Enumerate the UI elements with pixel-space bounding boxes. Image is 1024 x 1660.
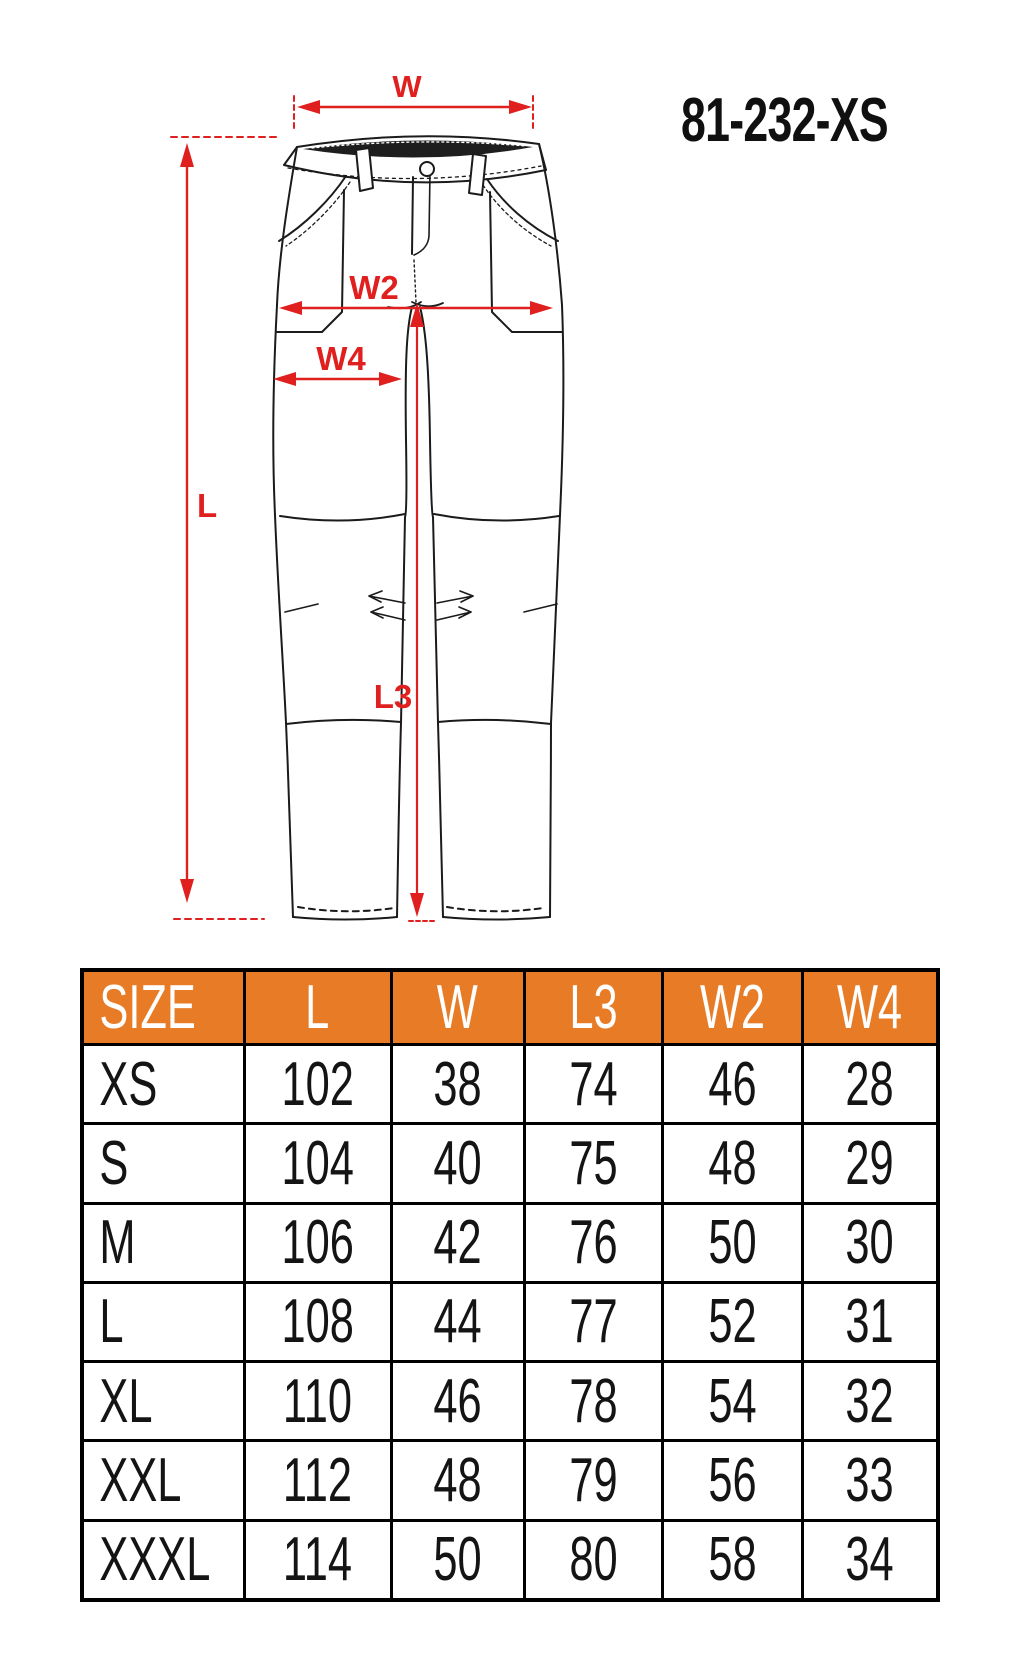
table-row-XXL: XXL11248795633 <box>82 1441 938 1520</box>
left-inseam <box>397 307 412 917</box>
size-cell: XS <box>82 1045 244 1124</box>
value-cell: 80 <box>524 1520 662 1600</box>
right-hem-stitch <box>447 907 543 911</box>
l-arrowhead-top <box>180 143 194 167</box>
dimension-w: W <box>294 69 533 129</box>
right-pocket-stitch <box>483 185 551 246</box>
header-cell-size: SIZE <box>82 970 244 1045</box>
table-row-XXXL: XXXL11450805834 <box>82 1520 938 1600</box>
right-lower-seam <box>438 720 551 724</box>
fly-left-edge <box>412 177 413 254</box>
value-cell: 112 <box>244 1441 391 1520</box>
size-cell: XXL <box>82 1441 244 1520</box>
value-cell: 46 <box>662 1045 802 1124</box>
w-arrowhead-left <box>297 100 320 114</box>
right-knee-seam <box>434 514 559 521</box>
table-header-row: SIZE L W L3 W2 W4 <box>82 970 938 1045</box>
fly-j-stitch <box>414 172 430 255</box>
w2-arrowhead-right <box>530 301 553 315</box>
size-cell: XXXL <box>82 1520 244 1600</box>
header-cell-w4: W4 <box>802 970 938 1045</box>
value-cell: 52 <box>662 1282 802 1361</box>
value-cell: 48 <box>662 1124 802 1203</box>
value-cell: 44 <box>391 1282 524 1361</box>
table-row-XL: XL11046785432 <box>82 1362 938 1441</box>
value-cell: 40 <box>391 1124 524 1203</box>
dimension-annotations: W L W2 W4 <box>171 69 553 921</box>
value-cell: 34 <box>802 1520 938 1600</box>
w-arrowhead-right <box>509 100 532 114</box>
left-knee-seam <box>280 514 405 521</box>
value-cell: 104 <box>244 1124 391 1203</box>
value-cell: 38 <box>391 1045 524 1124</box>
value-cell: 50 <box>662 1203 802 1282</box>
left-pocket-opening <box>279 176 346 241</box>
trousers-sketch <box>273 136 563 919</box>
waist-button <box>420 162 434 176</box>
value-cell: 114 <box>244 1520 391 1600</box>
right-hem-edge <box>443 917 550 920</box>
left-pocket-stitch <box>286 182 350 246</box>
header-cell-l: L <box>244 970 391 1045</box>
value-cell: 78 <box>524 1362 662 1441</box>
l3-label: L3 <box>374 678 413 715</box>
l3-arrowhead-bottom <box>410 893 424 917</box>
value-cell: 106 <box>244 1203 391 1282</box>
value-cell: 56 <box>662 1441 802 1520</box>
value-cell: 102 <box>244 1045 391 1124</box>
value-cell: 79 <box>524 1441 662 1520</box>
value-cell: 77 <box>524 1282 662 1361</box>
left-hem-stitch <box>298 907 394 911</box>
table-row-M: M10642765030 <box>82 1203 938 1282</box>
fly-center-stitch <box>414 260 416 302</box>
header-cell-l3: L3 <box>524 970 662 1045</box>
value-cell: 30 <box>802 1203 938 1282</box>
left-hem-edge <box>293 917 397 920</box>
value-cell: 58 <box>662 1520 802 1600</box>
w2-label: W2 <box>349 269 399 306</box>
size-cell: M <box>82 1203 244 1282</box>
w-label: W <box>392 69 422 104</box>
value-cell: 74 <box>524 1045 662 1124</box>
size-cell: S <box>82 1124 244 1203</box>
right-outseam <box>539 144 563 917</box>
size-chart-page: 81-232-XS <box>0 0 1024 1660</box>
value-cell: 33 <box>802 1441 938 1520</box>
value-cell: 29 <box>802 1124 938 1203</box>
table-row-XS: XS10238744628 <box>82 1045 938 1124</box>
dimension-w4: W4 <box>273 340 402 386</box>
table-body: XS10238744628S10440754829M10642765030L10… <box>82 1045 938 1601</box>
value-cell: 32 <box>802 1362 938 1441</box>
value-cell: 76 <box>524 1203 662 1282</box>
value-cell: 50 <box>391 1520 524 1600</box>
table-row-L: L10844775231 <box>82 1282 938 1361</box>
waist-opening-dark <box>303 140 533 157</box>
size-cell: L <box>82 1282 244 1361</box>
w2-arrowhead-left <box>279 301 302 315</box>
value-cell: 54 <box>662 1362 802 1441</box>
value-cell: 46 <box>391 1362 524 1441</box>
left-knee-darts <box>285 591 405 620</box>
size-chart-table: SIZE L W L3 W2 W4 XS10238744628S10440754… <box>80 968 940 1602</box>
size-cell: XL <box>82 1362 244 1441</box>
table-row-S: S10440754829 <box>82 1124 938 1203</box>
trousers-measurement-diagram: W L W2 W4 <box>0 0 1024 950</box>
belt-loop-right <box>469 154 486 195</box>
w4-arrowhead-left <box>273 372 296 386</box>
l-label: L <box>197 487 217 524</box>
value-cell: 75 <box>524 1124 662 1203</box>
right-inseam <box>420 307 443 917</box>
value-cell: 48 <box>391 1441 524 1520</box>
value-cell: 42 <box>391 1203 524 1282</box>
belt-loop-left <box>356 148 373 191</box>
l-arrowhead-bottom <box>180 879 194 903</box>
dimension-l: L <box>171 137 276 919</box>
right-knee-darts <box>437 591 557 620</box>
value-cell: 31 <box>802 1282 938 1361</box>
w4-arrowhead-right <box>379 372 402 386</box>
header-cell-w: W <box>391 970 524 1045</box>
left-lower-seam <box>286 720 401 724</box>
value-cell: 28 <box>802 1045 938 1124</box>
value-cell: 110 <box>244 1362 391 1441</box>
w4-label: W4 <box>316 340 366 377</box>
value-cell: 108 <box>244 1282 391 1361</box>
left-outseam <box>273 147 297 917</box>
header-cell-w2: W2 <box>662 970 802 1045</box>
